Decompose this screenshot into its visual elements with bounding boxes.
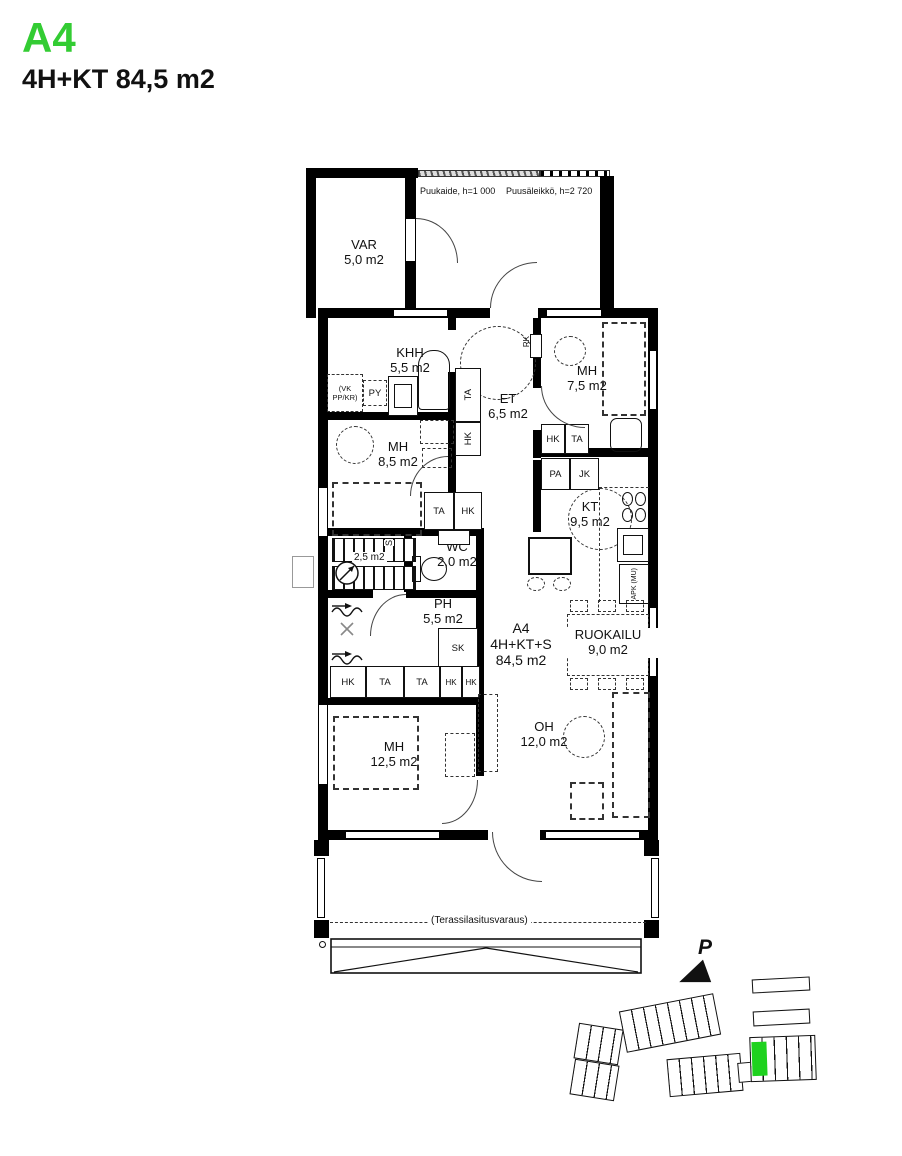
stairs-code-label: S xyxy=(384,540,394,546)
wc-toilet-bowl xyxy=(421,557,447,581)
mh3-door-arc xyxy=(442,780,478,824)
wall-khh-et xyxy=(448,318,456,330)
oh-sofa xyxy=(612,692,650,818)
mh2-bed xyxy=(332,482,422,536)
site-building xyxy=(753,1009,811,1027)
mh1-chair xyxy=(610,418,642,452)
mh3-window-left xyxy=(318,697,328,785)
site-building xyxy=(752,976,811,993)
wc-basin xyxy=(438,530,470,545)
kt-sink-basin xyxy=(623,535,643,555)
mh1-closet-ta: TA xyxy=(565,424,589,454)
hk-label: HK xyxy=(465,678,476,687)
shower-icon-b xyxy=(328,648,372,668)
oh-round-table xyxy=(563,716,605,758)
khh-py-reservation: PY xyxy=(363,380,387,406)
dining-chair xyxy=(598,600,616,612)
vk-ppkr-label: (VK PP/KR) xyxy=(328,384,362,402)
dining-chair xyxy=(598,678,616,690)
ta-label: TA xyxy=(416,677,427,688)
terrace-railing xyxy=(418,170,540,177)
dining-chair xyxy=(570,678,588,690)
kt-counter-line-h xyxy=(599,487,649,488)
mh1-closet-hk: HK xyxy=(541,424,565,454)
jk-label: JK xyxy=(579,469,590,480)
hall-closet-row: HK TA TA HK HK xyxy=(330,666,480,698)
oh-terrace-door-arc xyxy=(492,832,542,882)
terrace-corner-tl xyxy=(314,840,329,856)
khh-vk-reservation: (VK PP/KR) xyxy=(327,374,363,412)
room-area: 9,0 m2 xyxy=(558,643,658,658)
shower-icon-a xyxy=(328,600,372,620)
kt-sink xyxy=(617,528,649,562)
hk-label: HK xyxy=(463,432,474,445)
ta-label: TA xyxy=(379,677,390,688)
et-closet-ta: TA xyxy=(455,368,481,422)
hk-label: HK xyxy=(546,434,559,445)
mh2-closet-hk: HK xyxy=(454,492,482,530)
py-label: PY xyxy=(369,388,382,399)
et-closet-hk: HK xyxy=(455,422,481,456)
closet-hk: HK xyxy=(330,666,366,698)
kt-stool-b xyxy=(553,577,571,591)
room-label-ruokailu: RUOKAILU 9,0 m2 xyxy=(558,628,658,658)
north-label: P xyxy=(698,936,712,960)
oh-armchair xyxy=(478,694,498,772)
closet-ta: TA xyxy=(404,666,440,698)
site-building xyxy=(569,1059,619,1102)
site-building xyxy=(619,993,721,1053)
oh-side-table xyxy=(570,782,604,820)
var-door-arc xyxy=(416,218,458,263)
kt-fridge-jk: JK xyxy=(570,458,599,490)
mh2-closet-ta: TA xyxy=(424,492,454,530)
mh2-ceiling-lamp xyxy=(336,426,374,464)
dining-chair xyxy=(626,600,644,612)
closet-ta: TA xyxy=(366,666,404,698)
mh2-chair-a xyxy=(420,420,454,444)
terrace-corner-tr xyxy=(644,840,659,856)
site-building-highlighted xyxy=(749,1035,817,1082)
mh1-closets: HK TA xyxy=(541,424,589,454)
terrace-glazing-note: (Terassilasitusvaraus) xyxy=(428,915,531,926)
wall-ph-top-left xyxy=(328,590,373,598)
wall-mh3-top xyxy=(318,698,484,705)
mh1-window-right xyxy=(649,350,657,410)
ta-label: TA xyxy=(571,434,582,445)
site-highlight-unit xyxy=(751,1042,767,1077)
et-terrace-door-arc xyxy=(490,262,537,308)
puusaleikko-note: Puusäleikkö, h=2 720 xyxy=(506,186,592,196)
kt-island xyxy=(528,537,572,575)
mh3-window-bottom xyxy=(345,831,440,839)
site-building xyxy=(666,1053,743,1097)
burner xyxy=(635,492,646,506)
var-wall-top xyxy=(306,168,418,178)
mh2-window-left xyxy=(318,487,328,537)
floor-drain-icon xyxy=(340,622,354,636)
room-area: 5,0 m2 xyxy=(322,253,406,268)
ta-label: TA xyxy=(463,389,474,400)
wall-hall-kt xyxy=(533,460,541,532)
north-arrow-icon xyxy=(675,960,711,993)
mh1-window-top xyxy=(546,309,602,317)
khh-sink xyxy=(388,376,418,416)
burner xyxy=(635,508,646,522)
terrace-corner-bl xyxy=(314,920,329,938)
hk-label: HK xyxy=(445,678,456,687)
site-plan: P xyxy=(560,930,902,1156)
burner xyxy=(622,492,633,506)
puukaide-note: Puukaide, h=1 000 xyxy=(420,186,495,196)
kt-dishwasher-apk: APK (MU) xyxy=(619,564,649,604)
closet-hk: HK xyxy=(440,666,462,698)
ta-label: TA xyxy=(433,506,444,517)
terrace-rail-left xyxy=(317,858,325,918)
stairs-direction-icon xyxy=(334,560,360,586)
terrace-wall-right xyxy=(600,176,614,310)
dining-chair xyxy=(626,678,644,690)
room-label-var: VAR 5,0 m2 xyxy=(322,238,406,268)
pa-label: PA xyxy=(550,469,562,480)
wc-toilet-tank xyxy=(412,556,421,582)
kt-stove xyxy=(620,490,648,524)
var-wall-right-upper xyxy=(405,168,416,218)
apk-mu-label: APK (MU) xyxy=(631,568,638,600)
burner xyxy=(622,508,633,522)
terrace-rail-right xyxy=(651,858,659,918)
mh1-bed xyxy=(602,322,646,416)
kt-freezer-pa: PA xyxy=(541,458,570,490)
mh3-chair xyxy=(445,733,475,777)
mh1-ceiling-lamp xyxy=(554,336,586,366)
apt-wall-top xyxy=(318,308,658,318)
mh2-closets: TA HK xyxy=(424,492,482,530)
var-wall-left xyxy=(306,168,316,318)
khh-water-heater xyxy=(418,350,450,410)
khh-window-top xyxy=(393,309,448,317)
khh-sink-basin xyxy=(394,384,412,408)
mh3-bed xyxy=(333,716,419,790)
kt-stool-a xyxy=(527,577,545,591)
room-name: VAR xyxy=(322,238,406,253)
rk-panel xyxy=(530,334,542,358)
hk-label: HK xyxy=(461,506,474,517)
terrace-post xyxy=(319,941,326,948)
kt-counter-line-v xyxy=(599,487,600,602)
room-name: PH xyxy=(408,597,478,612)
room-name: RUOKAILU xyxy=(558,628,658,643)
hk-label: HK xyxy=(341,677,354,688)
et-terrace-door-gap xyxy=(490,308,538,318)
var-door-jamb xyxy=(405,218,416,262)
dining-chair xyxy=(570,600,588,612)
ph-door-arc xyxy=(370,594,406,636)
oh-window-bottom xyxy=(545,831,640,839)
exterior-duct xyxy=(292,556,314,588)
